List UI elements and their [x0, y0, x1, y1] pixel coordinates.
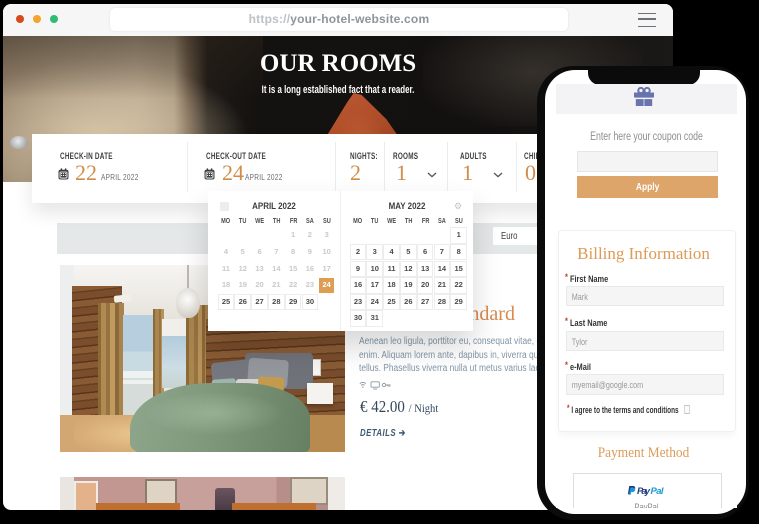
svg-text:Pal: Pal — [650, 486, 663, 497]
svg-text:Pay: Pay — [637, 486, 651, 497]
